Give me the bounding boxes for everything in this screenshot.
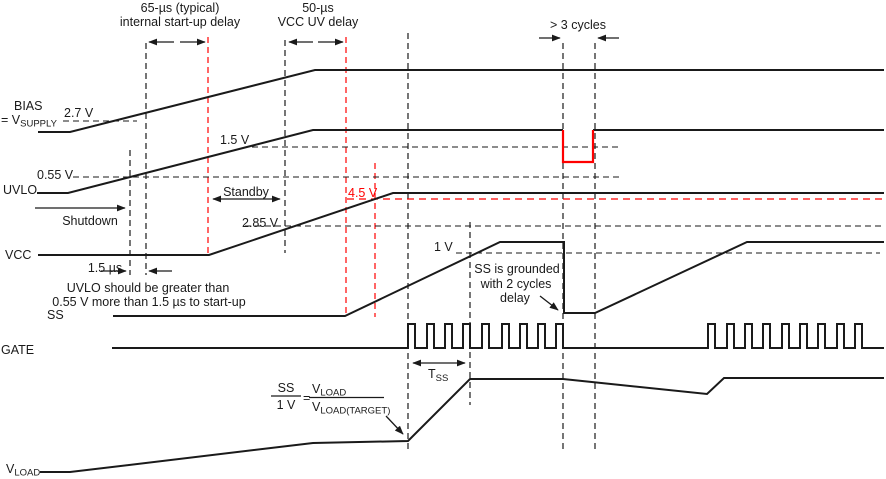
uvlo-waveform	[37, 130, 884, 193]
formula-pointer-arrow	[386, 416, 403, 434]
vcc-waveform	[38, 193, 884, 255]
vload-waveform	[40, 378, 884, 472]
tss-label: TSS	[428, 367, 448, 384]
threshold-0v55-label: 0.55 V	[37, 168, 74, 182]
threshold-1v-label: 1 V	[434, 240, 453, 254]
formula-rhs-numerator: VLOAD	[312, 382, 346, 399]
uvlo-fault-pulse	[563, 130, 593, 162]
vcc-label: VCC	[5, 248, 31, 262]
vcc-uv-delay-label-line1: 50-µs	[302, 1, 334, 15]
ss-grounded-line3: delay	[500, 291, 531, 305]
uvlo-label: UVLO	[3, 183, 37, 197]
standby-label: Standby	[223, 185, 270, 199]
delay-1us5-label: 1.5 µs	[88, 261, 122, 275]
threshold-1v5-label: 1.5 V	[220, 133, 250, 147]
formula-rhs-denominator: VLOAD(TARGET)	[312, 400, 390, 417]
bias-label: BIAS	[14, 99, 43, 113]
threshold-4v5-label: 4.5 V	[348, 186, 378, 200]
ss-label: SS	[47, 308, 64, 322]
ss-grounded-line1: SS is grounded	[474, 262, 560, 276]
startup-delay-label-line1: 65-µs (typical)	[141, 1, 220, 15]
uvlo-note-line2: 0.55 V more than 1.5 µs to start-up	[52, 295, 245, 309]
threshold-2v7-label: 2.7 V	[64, 106, 94, 120]
vload-label: VLOAD	[6, 462, 40, 479]
formula-lhs-numerator: SS	[278, 381, 295, 395]
bias-waveform	[38, 70, 884, 132]
startup-delay-label-line2: internal start-up delay	[120, 15, 241, 29]
ss-grounded-pointer-arrow	[540, 296, 558, 310]
gate-label: GATE	[1, 343, 34, 357]
formula-lhs-denominator: 1 V	[277, 398, 296, 412]
timing-diagram-page: 65-µs (typical) internal start-up delay …	[0, 0, 886, 479]
vcc-uv-delay-label-line2: VCC UV delay	[278, 15, 359, 29]
timing-diagram: 65-µs (typical) internal start-up delay …	[0, 0, 886, 479]
ss-grounded-line2: with 2 cycles	[480, 277, 552, 291]
threshold-2v85-label: 2.85 V	[242, 216, 279, 230]
shutdown-label: Shutdown	[62, 214, 118, 228]
uvlo-note-line1: UVLO should be greater than	[67, 281, 230, 295]
gate-waveform	[112, 324, 884, 348]
cycles-label: > 3 cycles	[550, 18, 606, 32]
vsupply-label: = VSUPPLY	[1, 113, 58, 130]
